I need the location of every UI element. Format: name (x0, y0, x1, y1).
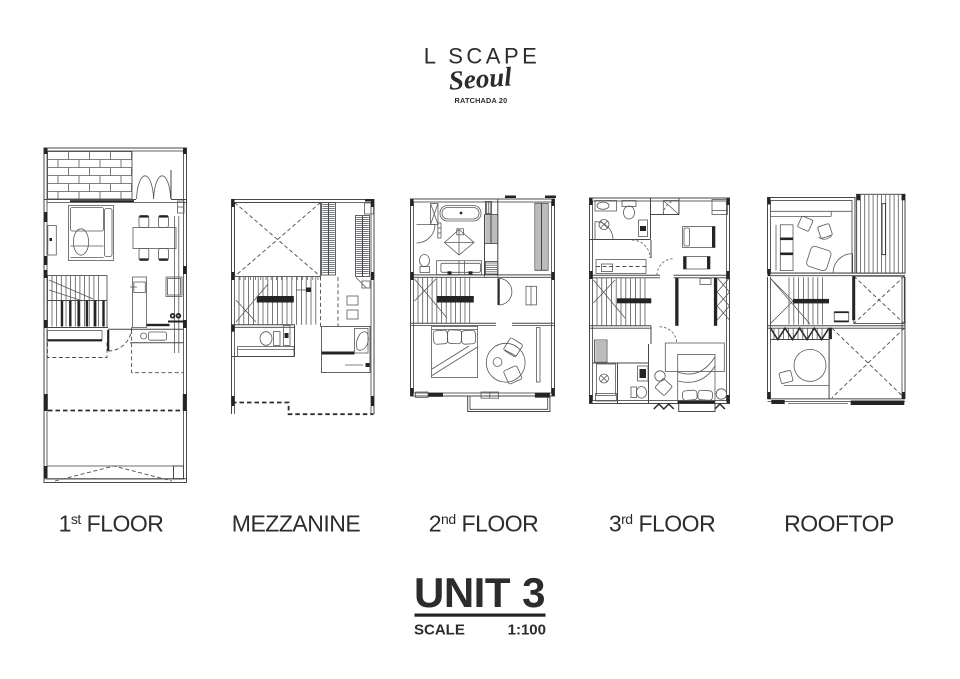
svg-text:RATCHADA 20: RATCHADA 20 (455, 96, 508, 105)
svg-text:MEZZANINE: MEZZANINE (232, 511, 361, 537)
svg-text:ROOFTOP: ROOFTOP (784, 511, 894, 537)
svg-text:UNIT: UNIT (414, 569, 511, 616)
svg-text:SCALE: SCALE (414, 622, 465, 639)
svg-text:Seoul: Seoul (448, 61, 513, 95)
svg-text:3: 3 (522, 569, 545, 616)
svg-text:1:100: 1:100 (508, 622, 546, 639)
